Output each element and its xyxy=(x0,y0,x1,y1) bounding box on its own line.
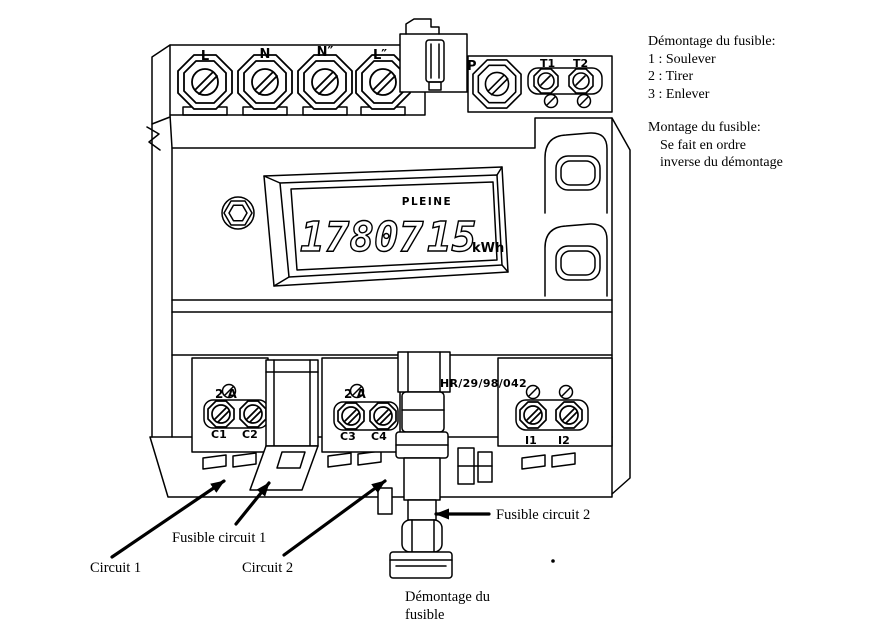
terminal-label-N2: N″ xyxy=(317,45,334,60)
terminal-I1-screw xyxy=(520,402,546,428)
terminal-C1-screw xyxy=(208,401,234,427)
meter-marking: HR/29/98/042 xyxy=(440,377,527,390)
terminal-label-L: L xyxy=(201,49,209,64)
terminal-N2-screw xyxy=(298,55,352,109)
spacer xyxy=(648,103,873,119)
impulse-screw-1 xyxy=(527,386,540,399)
lcd-reading-last: 15 xyxy=(427,213,476,261)
lcd-flag-label: PLEINE xyxy=(402,196,452,208)
removal-step-1: 1 : Soulever xyxy=(648,51,873,69)
terminal-label-T2: T2 xyxy=(573,57,588,70)
terminal-P-screw xyxy=(473,60,521,108)
top-center-block xyxy=(400,19,467,92)
terminal-I2-screw xyxy=(556,402,582,428)
seal-tabs xyxy=(545,133,607,296)
callout-circuit1: Circuit 1 xyxy=(90,560,141,576)
terminal-C3-screw xyxy=(338,403,364,429)
circuit2-rating-label: 2 A xyxy=(344,387,367,401)
terminal-label-I2: I2 xyxy=(558,434,570,447)
aux-screw-1 xyxy=(545,95,558,108)
callout-fuse2: Fusible circuit 2 xyxy=(496,507,590,523)
removal-step-3: 3 : Enlever xyxy=(648,86,873,104)
terminal-N-screw xyxy=(238,55,292,109)
lcd-reading: 1780715 xyxy=(300,213,476,261)
mount-title: Montage du fusible: xyxy=(648,119,873,137)
callout-removal-line1: Démontage du xyxy=(405,589,490,605)
terminal-C2-screw xyxy=(240,401,266,427)
aux-screw-2 xyxy=(578,95,591,108)
circuit2-module xyxy=(322,358,400,452)
terminal-label-T1: T1 xyxy=(540,57,555,70)
stray-dot xyxy=(551,559,555,563)
mount-line-1: Se fait en ordre xyxy=(648,137,873,155)
impulse-module xyxy=(498,358,612,446)
removal-step-2: 2 : Tirer xyxy=(648,68,873,86)
circuit1-rating-label: 2 A xyxy=(215,387,238,401)
terminal-label-C1: C1 xyxy=(211,428,227,441)
instruction-block: Démontage du fusible: 1 : Soulever 2 : T… xyxy=(648,33,873,172)
terminal-C4-screw xyxy=(370,403,396,429)
terminal-label-I1: I1 xyxy=(525,434,537,447)
callout-removal-line2: fusible xyxy=(405,607,444,623)
terminal-label-L2: L″ xyxy=(373,48,387,63)
terminal-label-C4: C4 xyxy=(371,430,387,443)
lcd-reading-main: 17807 xyxy=(300,213,424,261)
callout-circuit2: Circuit 2 xyxy=(242,560,293,576)
terminal-label-C2: C2 xyxy=(242,428,258,441)
figure-page: L N N″ L″ P T1 T2 PLEINE 1780715 kWh 2 A… xyxy=(0,0,883,635)
front-hex-screw xyxy=(222,197,254,229)
removal-title: Démontage du fusible: xyxy=(648,33,873,51)
impulse-screw-2 xyxy=(560,386,573,399)
lcd-unit-label: kWh xyxy=(472,241,504,256)
callout-fuse1: Fusible circuit 1 xyxy=(172,530,266,546)
mount-line-2: inverse du démontage xyxy=(648,154,873,172)
terminal-T2-screw xyxy=(569,69,593,93)
terminal-label-P: P xyxy=(467,59,477,74)
terminal-label-C3: C3 xyxy=(340,430,356,443)
terminal-T1-screw xyxy=(534,69,558,93)
terminal-label-N: N xyxy=(260,47,271,62)
